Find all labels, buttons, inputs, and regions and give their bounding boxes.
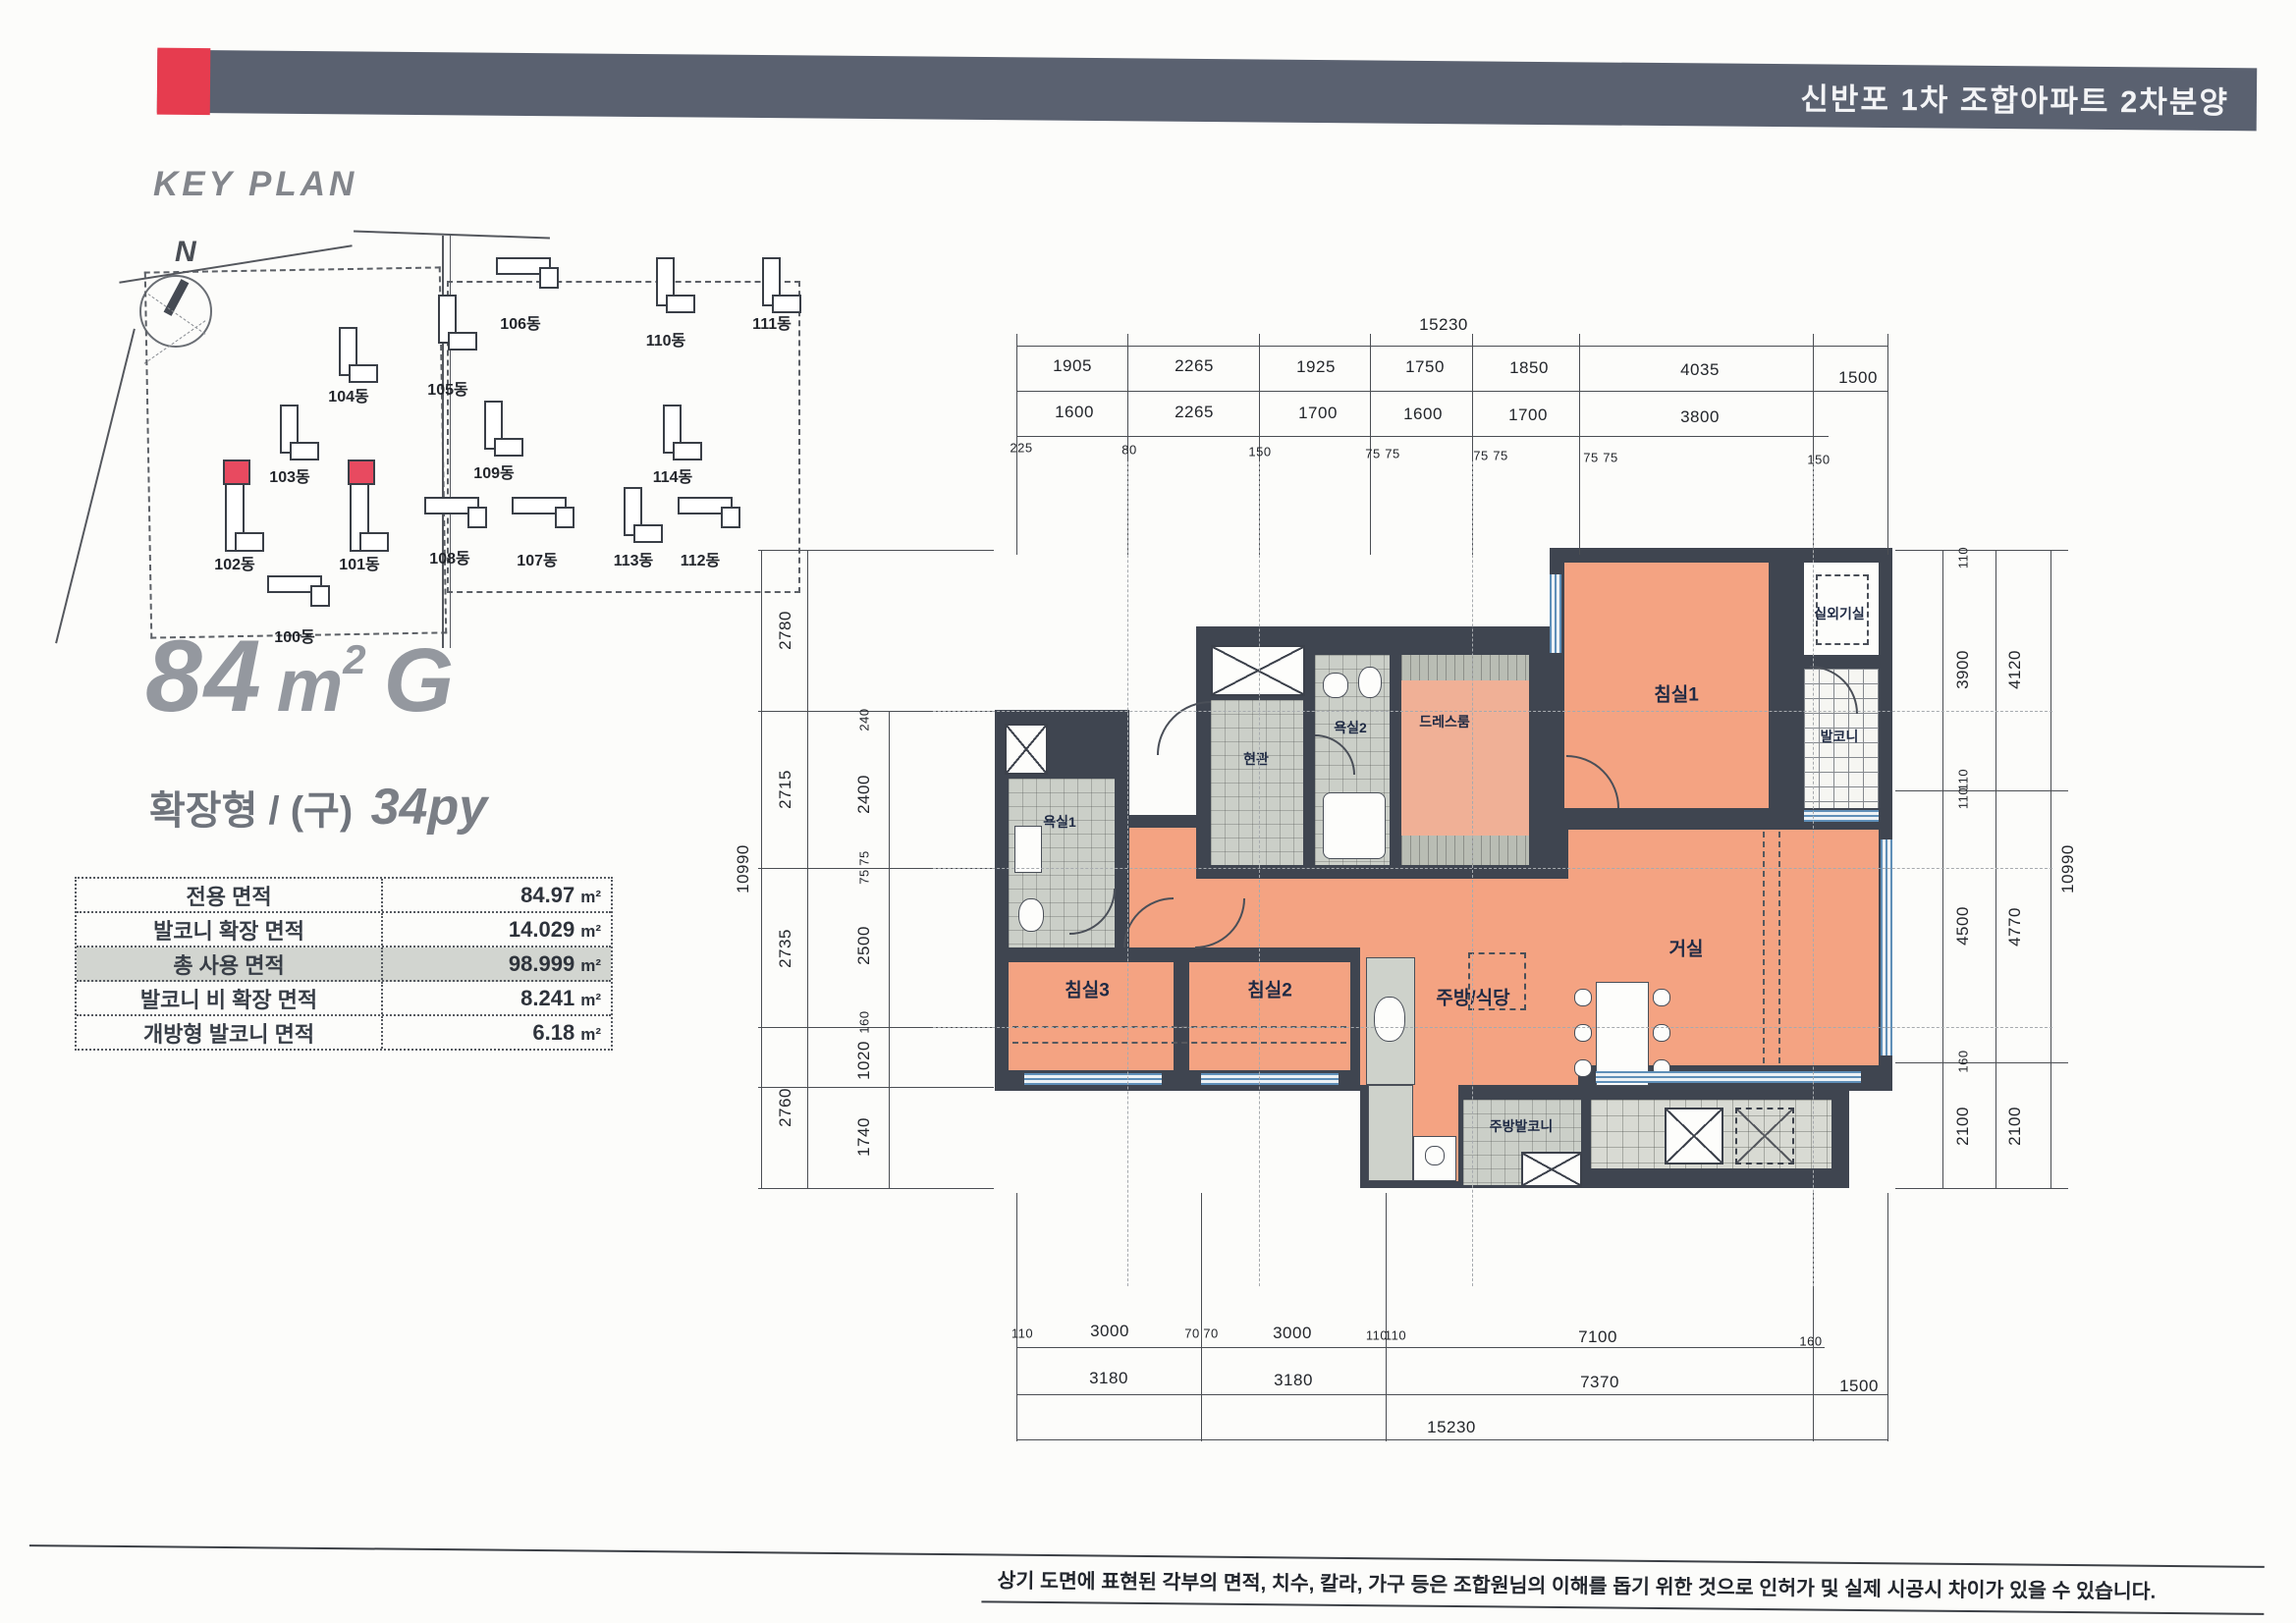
area-superscript: 2 [343, 636, 365, 682]
area-row-value: 8.241m² [383, 986, 611, 1011]
area-row-unit: m² [580, 956, 601, 975]
dimension-label: 1500 [1838, 368, 1878, 388]
dimension-label: 4500 [1953, 906, 1973, 946]
grid-axis [933, 868, 2052, 869]
dimension-line [2050, 550, 2051, 1188]
room-label: 침실3 [1065, 976, 1110, 1002]
dimension-label: 1700 [1508, 406, 1548, 425]
dimension-label: 75 [1473, 449, 1488, 463]
dimension-label: 70 [1203, 1326, 1218, 1341]
unit-type-label: 확장형 / (구) [149, 789, 353, 833]
dimension-label: 75 [857, 869, 872, 884]
building-shape [349, 364, 378, 383]
room-label: 현관 [1243, 749, 1269, 769]
extension-line [758, 1188, 994, 1189]
extension-line [1579, 334, 1580, 555]
building-shape [310, 585, 330, 607]
dimension-label: 110 [1011, 1326, 1033, 1341]
dimension-label: 7100 [1578, 1327, 1617, 1347]
building-shape [721, 507, 740, 528]
area-row-label: 총 사용 면적 [77, 947, 383, 980]
dimension-label: 1925 [1296, 357, 1336, 377]
building-shape [673, 442, 702, 460]
dimension-label: 3800 [1680, 407, 1720, 427]
highlighted-unit [223, 460, 250, 485]
dimension-label: 2715 [776, 770, 795, 809]
grid-axis [1472, 461, 1473, 1286]
keyplan-building-label: 103동 [269, 463, 309, 487]
dimension-label: 75 [1365, 447, 1380, 461]
dimension-label: 15230 [1427, 1418, 1476, 1437]
dimension-line [1016, 1347, 1825, 1348]
room-label: 드레스룸 [1419, 712, 1470, 731]
dimension-label: 1500 [1839, 1377, 1879, 1396]
dimension-label: 150 [1807, 453, 1830, 467]
grid-axis [933, 1027, 2052, 1028]
dimension-label: 75 [1493, 449, 1507, 463]
room-label: 거실 [1669, 935, 1704, 961]
dimension-label: 80 [1121, 443, 1136, 458]
dimension-label: 1700 [1298, 404, 1338, 423]
area-row-value: 84.97m² [383, 883, 611, 908]
dimension-label: 2760 [776, 1088, 795, 1127]
dimension-line [1016, 1439, 1887, 1440]
room-label: 주방/식당 [1436, 984, 1509, 1010]
keyplan-building-label: 113동 [614, 547, 654, 570]
extension-line [1887, 334, 1888, 555]
dimension-label: 160 [1799, 1334, 1822, 1349]
extension-line [1386, 1193, 1387, 1441]
dimension-label: 1740 [854, 1117, 874, 1157]
building-shape [555, 507, 574, 528]
area-row-value: 14.029m² [383, 917, 611, 943]
north-label: N [175, 236, 196, 269]
dimension-line [1942, 550, 1943, 1188]
dimension-label: 2265 [1175, 356, 1214, 376]
dimension-label: 1905 [1053, 356, 1092, 376]
dimension-label: 75 [1583, 451, 1598, 465]
building-shape [448, 332, 477, 351]
keyplan-building-label: 110동 [646, 327, 686, 351]
dimension-label: 10990 [2058, 844, 2078, 893]
area-row-value: 6.18m² [383, 1020, 611, 1046]
dimension-line [807, 550, 808, 1188]
footer: 상기 도면에 표현된 각부의 면적, 치수, 칼라, 가구 등은 조합원님의 이… [0, 1531, 2296, 1552]
grid-axis [933, 711, 2052, 712]
dimension-label: 2780 [776, 611, 795, 650]
key-plan-title: KEY PLAN [153, 165, 357, 204]
keyplan-building-label: 106동 [500, 310, 540, 334]
area-row-label: 전용 면적 [77, 879, 383, 911]
building-shape [633, 524, 663, 543]
area-table-row: 총 사용 면적98.999m² [77, 947, 611, 982]
highlighted-unit [348, 460, 375, 485]
header-accent-square [157, 48, 211, 115]
dimension-line [1016, 1394, 1887, 1395]
area-number: 84 [145, 620, 263, 733]
dimension-label: 2100 [1953, 1107, 1973, 1146]
dimension-label: 110 [1956, 787, 1971, 809]
area-row-unit: m² [580, 991, 601, 1009]
dimension-label: 70 [1184, 1326, 1199, 1341]
area-row-label: 발코니 확장 면적 [77, 913, 383, 946]
extension-line [1895, 550, 2068, 551]
building-shape [359, 532, 389, 552]
grid-axis [1259, 461, 1260, 1286]
dimension-label: 110 [1385, 1328, 1406, 1343]
dimension-label: 1020 [854, 1041, 874, 1080]
dimension-label: 3000 [1090, 1322, 1129, 1341]
keyplan-building-label: 108동 [429, 545, 469, 568]
building-shape [539, 267, 559, 289]
building-shape [290, 442, 319, 460]
area-row-unit: m² [580, 1025, 601, 1044]
dimension-label: 160 [1956, 1050, 1971, 1072]
keyplan-building-label: 105동 [427, 376, 467, 400]
extension-line [1887, 1193, 1888, 1441]
dimension-label: 1850 [1509, 358, 1549, 378]
extension-line [1895, 1062, 2068, 1063]
area-unit: m [277, 644, 344, 728]
dimension-label: 3900 [1953, 650, 1973, 689]
building-shape [235, 532, 264, 552]
extension-line [758, 550, 994, 551]
dimension-line [1016, 346, 1887, 347]
grid-axis [1813, 461, 1814, 1286]
dimension-line [1016, 436, 1829, 437]
keyplan-building-label: 109동 [473, 460, 514, 483]
room-label: 욕실2 [1334, 718, 1367, 737]
building-shape [666, 295, 695, 313]
area-table-row: 전용 면적84.97m² [77, 879, 611, 913]
keyplan-building-label: 114동 [653, 463, 693, 487]
page-title: 신반포 1차 조합아파트 2차분양 [1800, 74, 2257, 122]
dimension-label: 160 [857, 1010, 872, 1033]
keyplan-building-label: 107동 [517, 547, 557, 570]
dimension-label: 2265 [1175, 403, 1214, 422]
room-label: 침실2 [1247, 976, 1292, 1002]
extension-line [1370, 334, 1371, 555]
grid-axis [1127, 461, 1128, 1286]
dimension-label: 4120 [2005, 650, 2025, 689]
extension-line [1895, 1188, 2068, 1189]
area-table: 전용 면적84.97m²발코니 확장 면적14.029m²총 사용 면적98.9… [75, 877, 613, 1051]
dimension-line [761, 550, 762, 1188]
room-label: 주방발코니 [1490, 1116, 1553, 1136]
area-table-row: 발코니 확장 면적14.029m² [77, 913, 611, 947]
extension-line [1895, 790, 2068, 791]
door-arcs [977, 535, 1910, 1222]
dimension-label: 75 [1603, 451, 1617, 465]
dimension-label: 15230 [1419, 315, 1468, 335]
footer-note: 상기 도면에 표현된 각부의 면적, 치수, 칼라, 가구 등은 조합원님의 이… [997, 1564, 2264, 1605]
site-edge [354, 231, 550, 240]
dimension-label: 3180 [1089, 1369, 1128, 1388]
scanned-floor-plan-page: 신반포 1차 조합아파트 2차분양 KEY PLAN N 104동106동110… [0, 0, 2296, 1623]
header-bar: 신반포 1차 조합아파트 2차분양 [157, 50, 2257, 132]
dimension-label: 10990 [734, 844, 753, 893]
area-row-unit: m² [580, 922, 601, 941]
building-shape [467, 507, 487, 528]
dimension-label: 7370 [1580, 1373, 1619, 1392]
dimension-label: 4035 [1680, 360, 1720, 380]
dimension-label: 1600 [1403, 405, 1443, 424]
dimension-label: 2735 [776, 929, 795, 968]
dimension-label: 4770 [2005, 907, 2025, 947]
area-row-label: 발코니 비 확장 면적 [77, 982, 383, 1014]
dimension-line [889, 711, 890, 1188]
extension-line [1201, 1193, 1202, 1441]
unit-pyeong-label: 34py [371, 779, 488, 836]
unit-area-title: 84m2G [145, 619, 454, 735]
room-label: 욕실1 [1043, 812, 1076, 832]
dimension-label: 240 [857, 708, 872, 730]
dimension-label: 3000 [1273, 1324, 1312, 1343]
area-row-label: 개방형 발코니 면적 [77, 1016, 383, 1049]
room-label: 발코니 [1821, 727, 1859, 746]
dimension-line [1995, 550, 1996, 1188]
floor-plan: 침실1실외기실발코니현관욕실2드레스룸욕실1침실3침실2주방/식당거실주방발코니 [977, 535, 1910, 1222]
dimension-label: 3180 [1274, 1371, 1313, 1390]
dimension-label: 75 [1385, 447, 1399, 461]
area-table-row: 발코니 비 확장 면적8.241m² [77, 982, 611, 1016]
building-shape [494, 438, 523, 457]
dimension-label: 225 [1010, 441, 1032, 456]
keyplan-building-label: 111동 [752, 310, 792, 334]
area-row-unit: m² [580, 888, 601, 906]
dimension-label: 2100 [2005, 1107, 2025, 1146]
extension-line [1016, 1193, 1017, 1441]
room-label: 침실1 [1654, 680, 1699, 707]
dimension-label: 1600 [1055, 403, 1094, 422]
area-row-value: 98.999m² [383, 951, 611, 977]
dimension-label: 2400 [854, 775, 874, 814]
area-table-row: 개방형 발코니 면적6.18m² [77, 1016, 611, 1049]
room-label: 실외기실 [1814, 604, 1865, 623]
dimension-label: 110 [1956, 547, 1971, 568]
dimension-label: 1750 [1405, 357, 1445, 377]
keyplan-building-label: 102동 [214, 551, 254, 574]
dimension-label: 2500 [854, 926, 874, 965]
dimension-line [1016, 391, 1887, 392]
keyplan-building-label: 101동 [339, 551, 379, 574]
keyplan-building-label: 104동 [328, 383, 368, 406]
unit-subtitle: 확장형 / (구) 34py [149, 778, 487, 837]
dimension-label: 150 [1248, 445, 1271, 460]
area-type-letter: G [384, 630, 455, 730]
keyplan-building-label: 112동 [681, 547, 721, 570]
dimension-label: 75 [857, 850, 872, 865]
site-edge [55, 329, 136, 644]
